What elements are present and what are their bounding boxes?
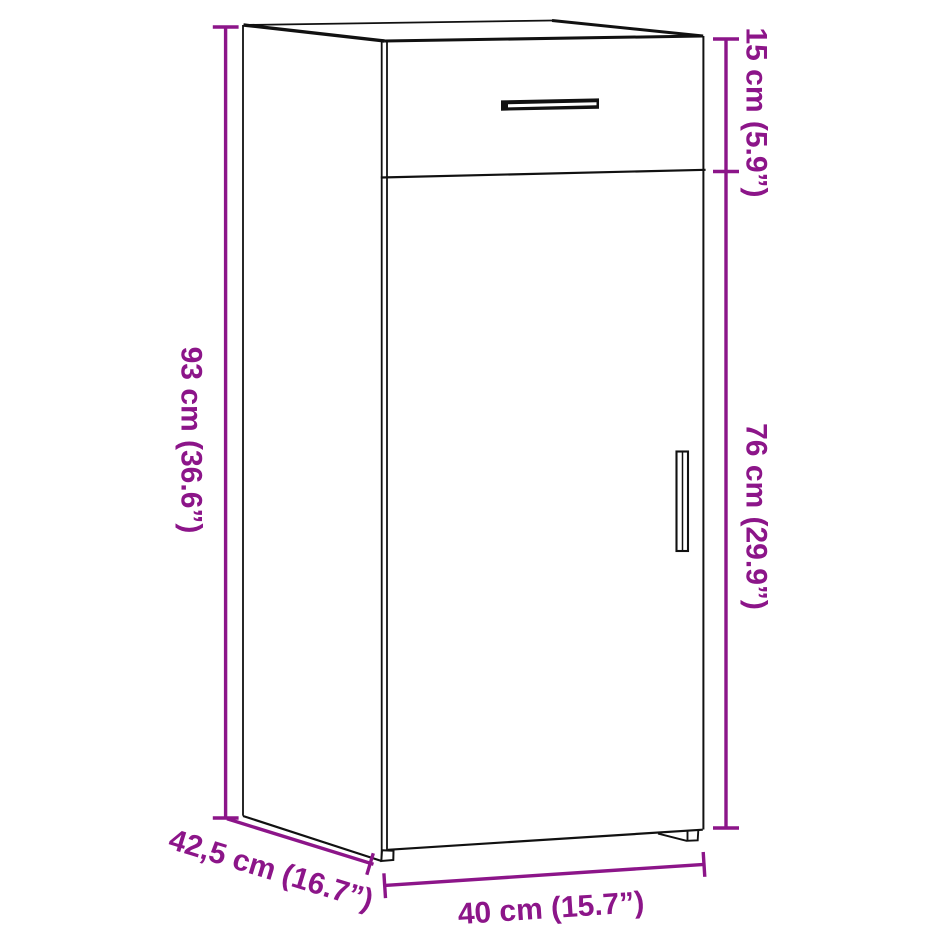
svg-text:93 cm (36.6”): 93 cm (36.6”) bbox=[175, 347, 208, 534]
svg-text:15 cm (5.9”): 15 cm (5.9”) bbox=[740, 27, 773, 197]
svg-text:76 cm (29.9”): 76 cm (29.9”) bbox=[740, 423, 773, 610]
